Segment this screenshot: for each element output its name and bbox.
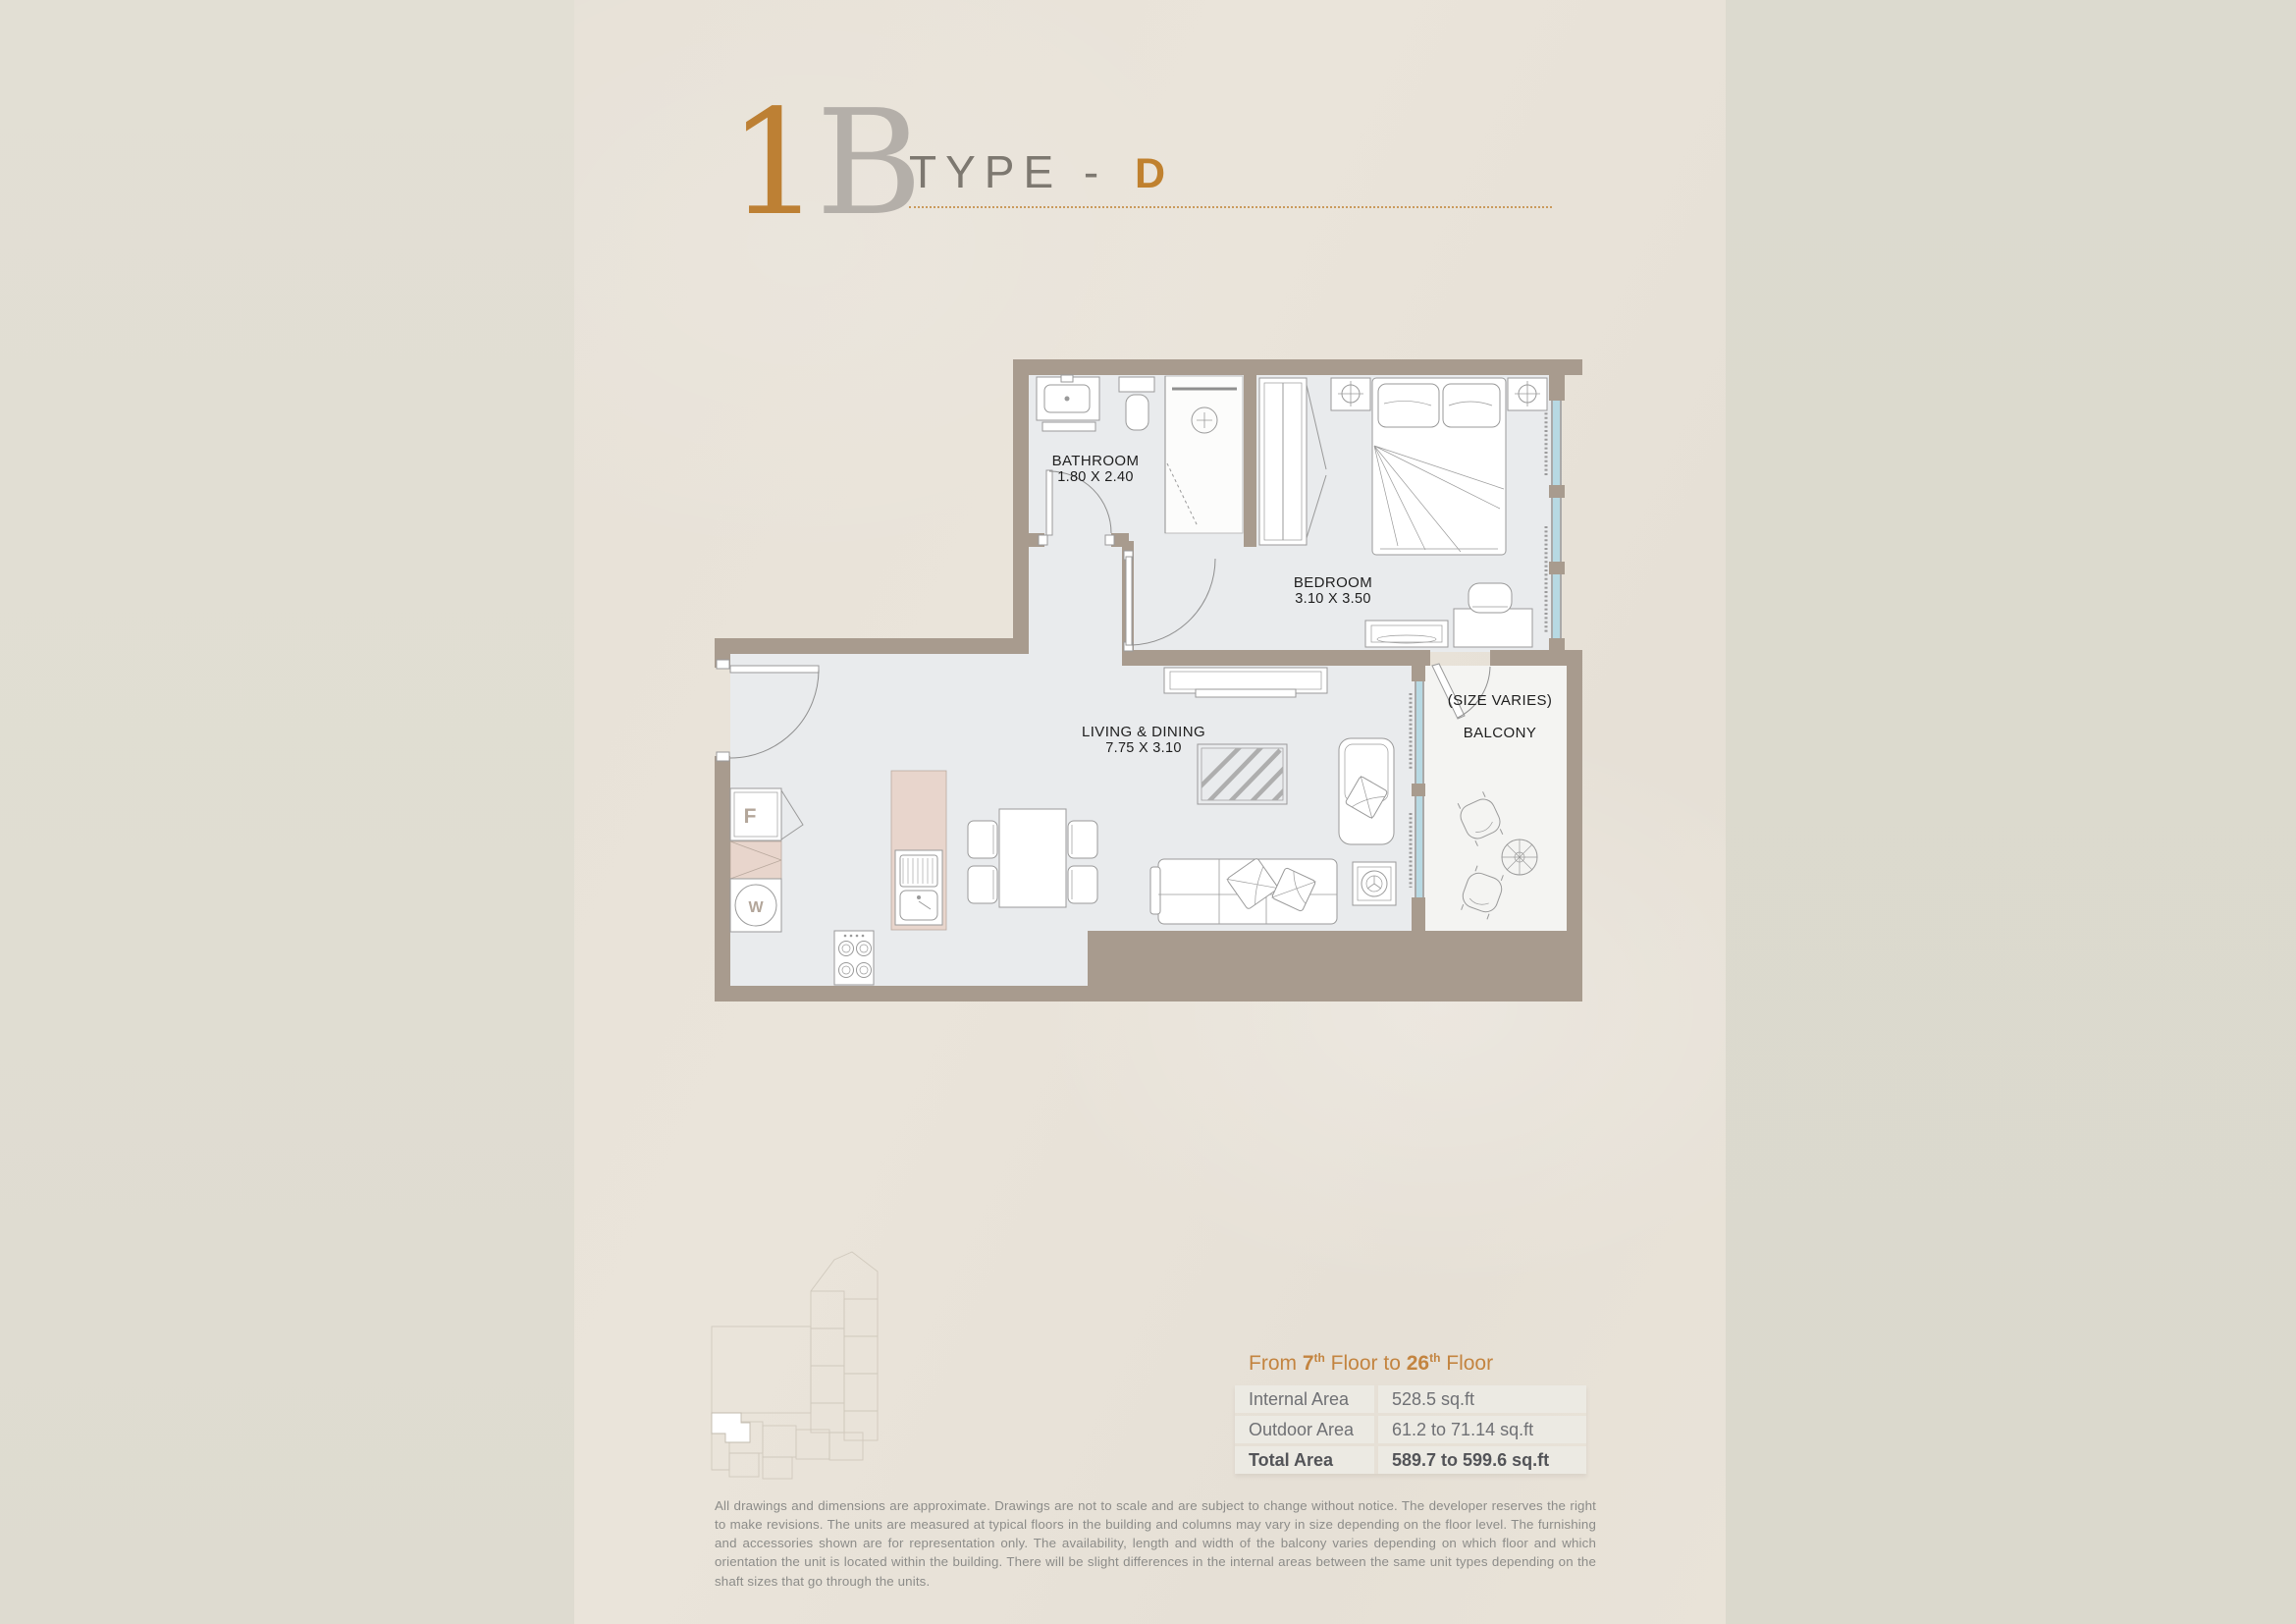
bedroom-label: BEDROOM [1294, 574, 1372, 591]
row-label: Total Area [1235, 1446, 1374, 1474]
desk-icon [1454, 609, 1532, 647]
floor-lamp-icon [1353, 862, 1396, 905]
balcony-note: (SIZE VARIES) [1448, 692, 1553, 709]
bedroom-dims: 3.10 X 3.50 [1295, 591, 1370, 607]
balcony-table-icon [1502, 839, 1537, 875]
row-label: Internal Area [1235, 1385, 1374, 1413]
table-row-total-area: Total Area 589.7 to 599.6 sq.ft [1235, 1446, 1586, 1474]
living-dims: 7.75 X 3.10 [1105, 740, 1181, 756]
stove-icon [834, 931, 874, 985]
page-margin-left [0, 0, 574, 1624]
table-row-internal-area: Internal Area 528.5 sq.ft [1235, 1385, 1586, 1413]
key-plan [685, 1230, 911, 1493]
dresser-icon [1365, 621, 1448, 647]
floor-range-line: From 7th Floor to 26th Floor [1249, 1351, 1586, 1376]
dotted-divider [909, 206, 1552, 208]
row-value: 589.7 to 599.6 sq.ft [1378, 1446, 1586, 1474]
floor-plan: F W [715, 359, 1582, 1007]
sofa-icon [1150, 858, 1337, 924]
desk-chair-icon [1468, 583, 1512, 613]
balcony-label: BALCONY [1464, 725, 1537, 741]
disclaimer-text: All drawings and dimensions are approxim… [715, 1496, 1596, 1591]
living-label: LIVING & DINING [1082, 724, 1205, 740]
washer-label: W [748, 899, 764, 916]
sink-icon [1037, 375, 1099, 431]
nightstand-icon [1331, 378, 1370, 410]
tv-console-icon [1164, 668, 1327, 697]
shower-icon [1165, 376, 1243, 533]
title-unit-number: 1 [728, 79, 816, 247]
row-value: 61.2 to 71.14 sq.ft [1378, 1416, 1586, 1443]
lounge-chair-icon [1339, 738, 1394, 844]
washer-icon: W [730, 879, 781, 932]
fridge-label: F [744, 805, 757, 828]
nightstand-icon [1508, 378, 1547, 410]
area-block: From 7th Floor to 26th Floor Internal Ar… [1235, 1351, 1586, 1474]
bathroom-label: BATHROOM [1052, 453, 1140, 469]
key-plan-highlighted-unit [712, 1413, 750, 1442]
title-block: 1B [728, 90, 918, 236]
bathroom-dims: 1.80 X 2.40 [1057, 469, 1133, 485]
table-row-outdoor-area: Outdoor Area 61.2 to 71.14 sq.ft [1235, 1416, 1586, 1443]
type-line: TYPE - D [909, 145, 1167, 198]
page-title: 1B [728, 79, 918, 247]
kitchen-sink-icon [895, 850, 942, 925]
row-label: Outdoor Area [1235, 1416, 1374, 1443]
dining-table-icon [999, 809, 1066, 907]
type-value: D [1135, 150, 1167, 197]
type-label: TYPE - [909, 146, 1129, 197]
bed-icon [1372, 378, 1506, 555]
page-margin-right [1726, 0, 2296, 1624]
row-value: 528.5 sq.ft [1378, 1385, 1586, 1413]
area-table: Internal Area 528.5 sq.ft Outdoor Area 6… [1235, 1385, 1586, 1474]
title-unit-letter: B [816, 79, 918, 247]
